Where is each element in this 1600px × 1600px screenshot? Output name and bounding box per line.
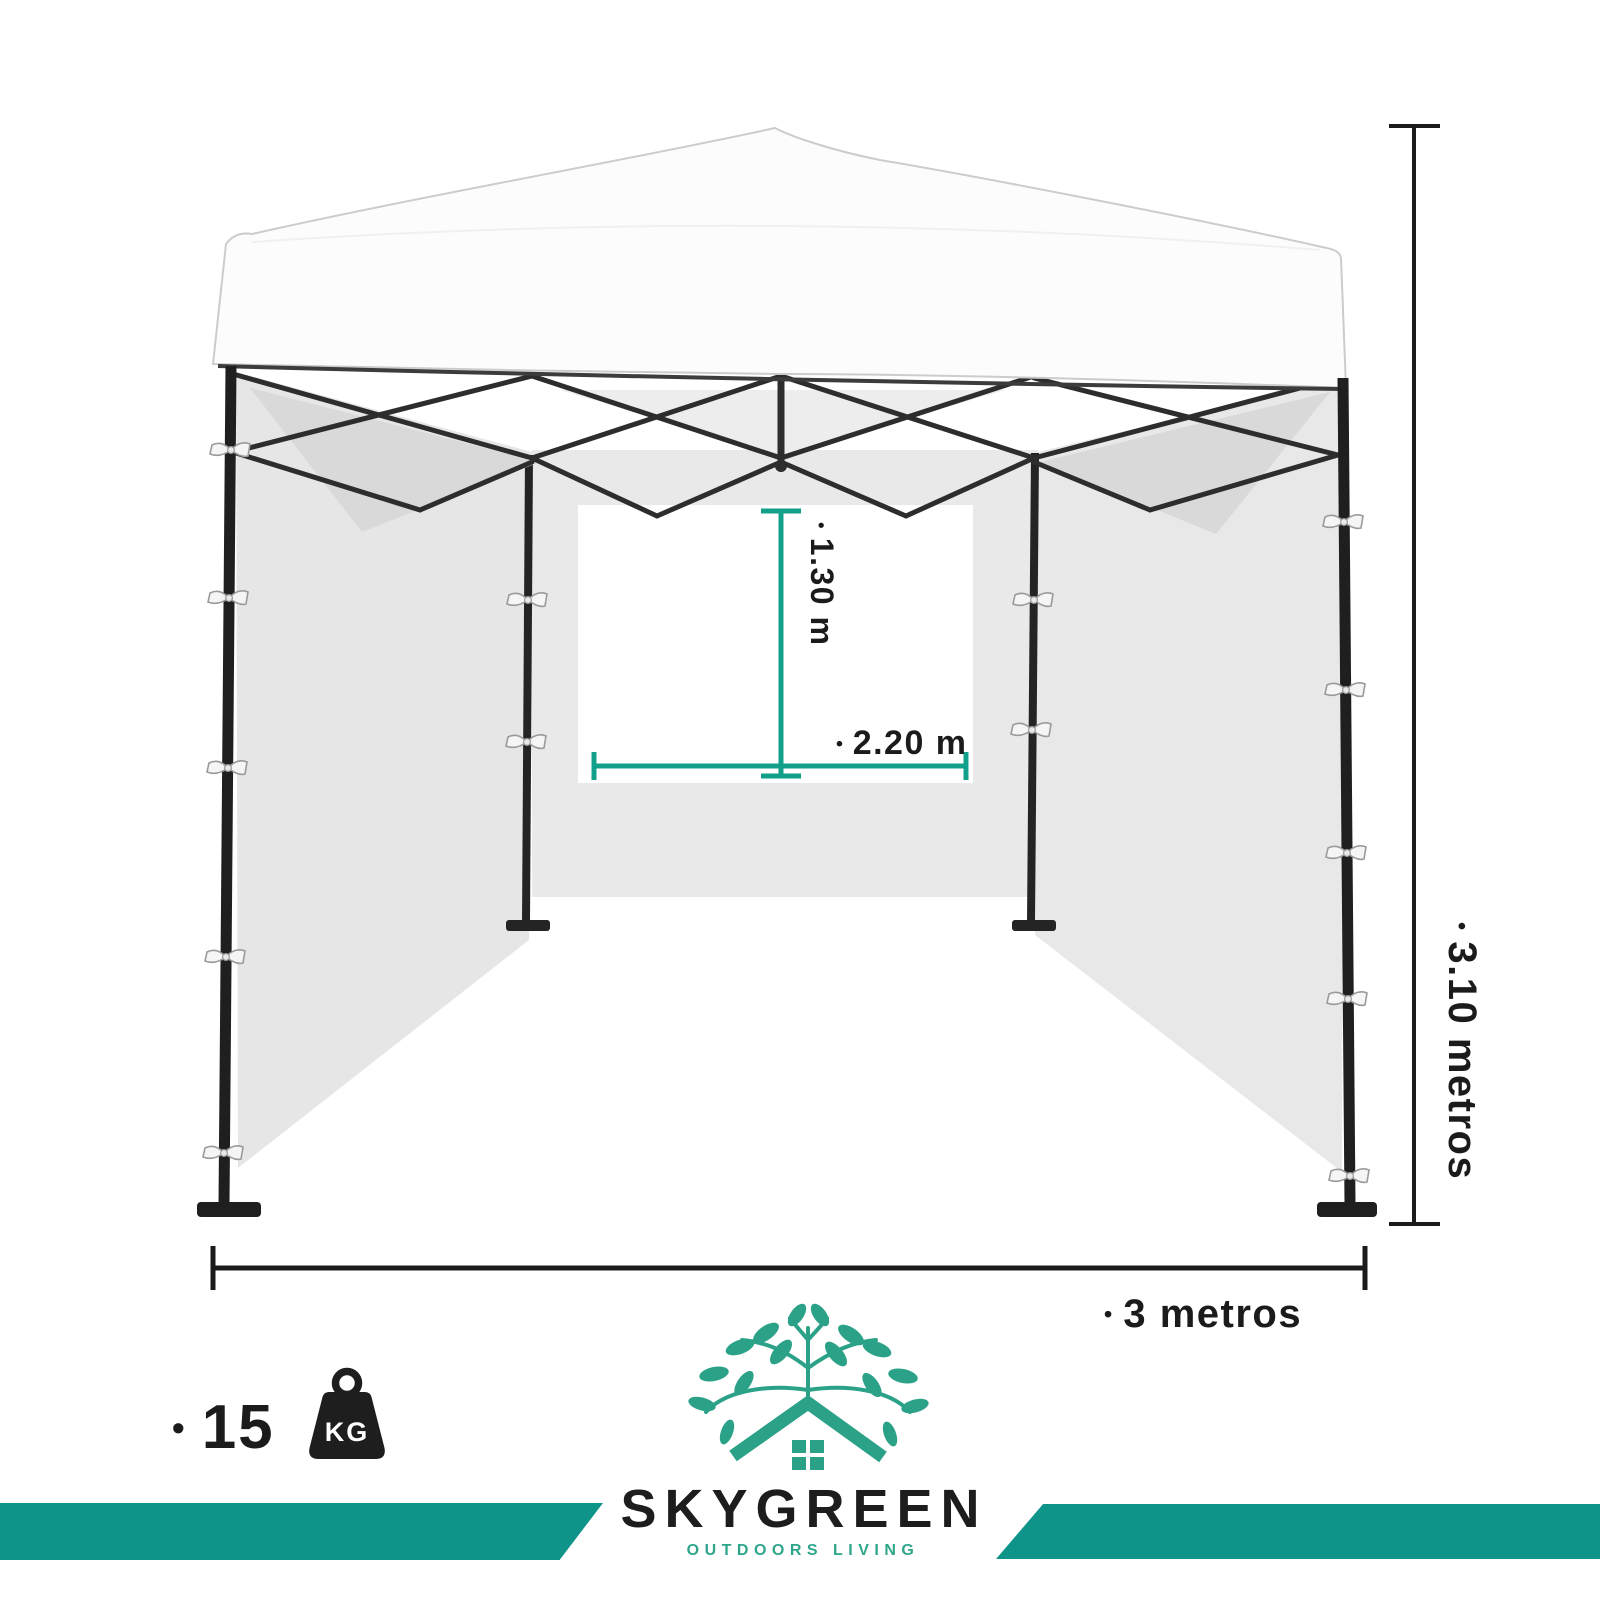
- window-height-label: •1.30 m: [803, 522, 840, 646]
- window-width-value: 2.20 m: [853, 724, 968, 762]
- accent-ribbon-left: [0, 1503, 603, 1560]
- frame-width-label: •3 metros: [1104, 1292, 1302, 1337]
- tree-house-logo-icon: [687, 1301, 930, 1470]
- bullet-dot: •: [172, 1407, 187, 1449]
- brand-tagline: OUTDOORS LIVING: [681, 1542, 920, 1560]
- product-dimension-infographic: •1.30 m •2.20 m •3.10 metros •3 metros •…: [0, 0, 1600, 1600]
- accent-ribbon-right: [996, 1504, 1600, 1559]
- window-height-value: 1.30 m: [804, 538, 840, 647]
- bullet-dot: •: [1448, 922, 1475, 932]
- brand-name: SKYGREEN: [612, 1478, 987, 1540]
- tent-illustration: [0, 0, 1600, 1600]
- frame-height-value: 3.10 metros: [1440, 941, 1484, 1180]
- frame-width-dimension-line: [213, 1246, 1365, 1290]
- frame-width-value: 3 metros: [1123, 1292, 1302, 1336]
- canopy-top: [213, 128, 1346, 389]
- weight-unit-label: KG: [312, 1417, 382, 1448]
- bullet-dot: •: [1104, 1301, 1114, 1328]
- bullet-dot: •: [810, 522, 832, 530]
- weight-label: •15: [172, 1392, 275, 1463]
- frame-height-dimension-line: [1389, 126, 1440, 1224]
- window-width-label: •2.20 m: [836, 724, 968, 763]
- weight-value: 15: [202, 1393, 275, 1462]
- bullet-dot: •: [836, 733, 844, 756]
- frame-height-label: •3.10 metros: [1439, 922, 1484, 1180]
